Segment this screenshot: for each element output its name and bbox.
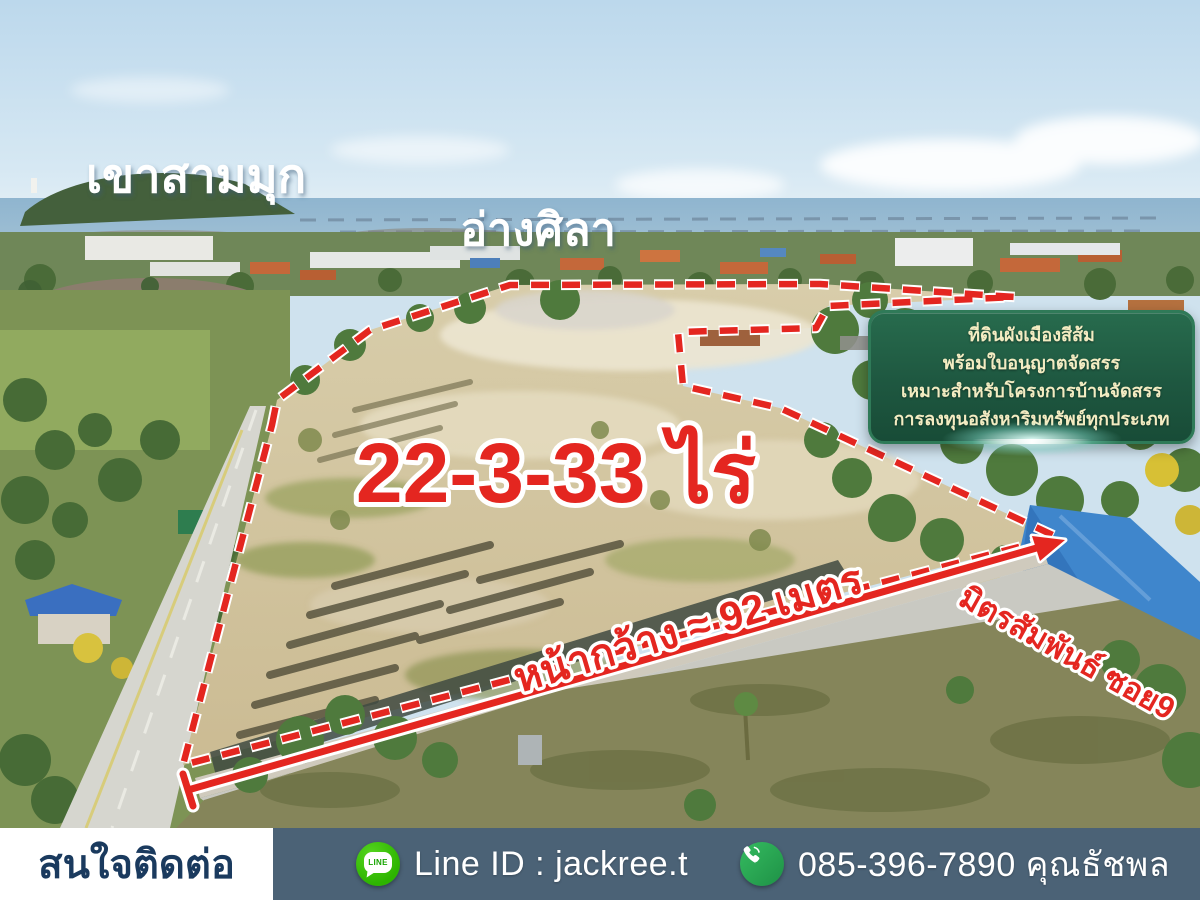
phone-call-icon bbox=[740, 842, 784, 886]
contact-heading-panel: สนใจติดต่อ bbox=[0, 828, 273, 900]
bay-town-label: อ่างศิลา bbox=[460, 204, 616, 255]
line-id-text: Line ID : jackree.t bbox=[414, 845, 688, 884]
contact-bar: สนใจติดต่อ LINE Line ID : jackree.t 085-… bbox=[0, 828, 1200, 900]
info-line-4: การลงทุนอสังหาริมทรัพย์ทุกประเภท bbox=[893, 406, 1169, 432]
info-box: ที่ดินผังเมืองสีส้ม พร้อมใบอนุญาตจัดสรร … bbox=[868, 310, 1195, 444]
line-bubble-text: LINE bbox=[368, 858, 387, 867]
phone-number-text: 085-396-7890 คุณธัชพล bbox=[798, 837, 1170, 891]
line-bubble: LINE bbox=[364, 852, 392, 873]
land-area-label: 22-3-33 ไร่ bbox=[356, 425, 756, 520]
info-line-1: ที่ดินผังเมืองสีส้ม bbox=[968, 322, 1095, 348]
land-sale-poster: เขาสามมุก อ่างศิลา 22-3-33 ไร่ หน้ากว้าง… bbox=[0, 0, 1200, 900]
phone-contact: 085-396-7890 คุณธัชพล bbox=[740, 828, 1170, 900]
line-app-icon: LINE bbox=[356, 842, 400, 886]
mountain-label: เขาสามมุก bbox=[86, 149, 306, 205]
contact-heading: สนใจติดต่อ bbox=[38, 832, 235, 896]
line-contact: LINE Line ID : jackree.t bbox=[356, 828, 688, 900]
info-line-2: พร้อมใบอนุญาตจัดสรร bbox=[943, 350, 1120, 376]
info-line-3: เหมาะสำหรับโครงการบ้านจัดสรร bbox=[901, 378, 1162, 404]
phone-handset-glyph bbox=[740, 842, 764, 866]
glow-flare-core bbox=[972, 439, 1092, 444]
